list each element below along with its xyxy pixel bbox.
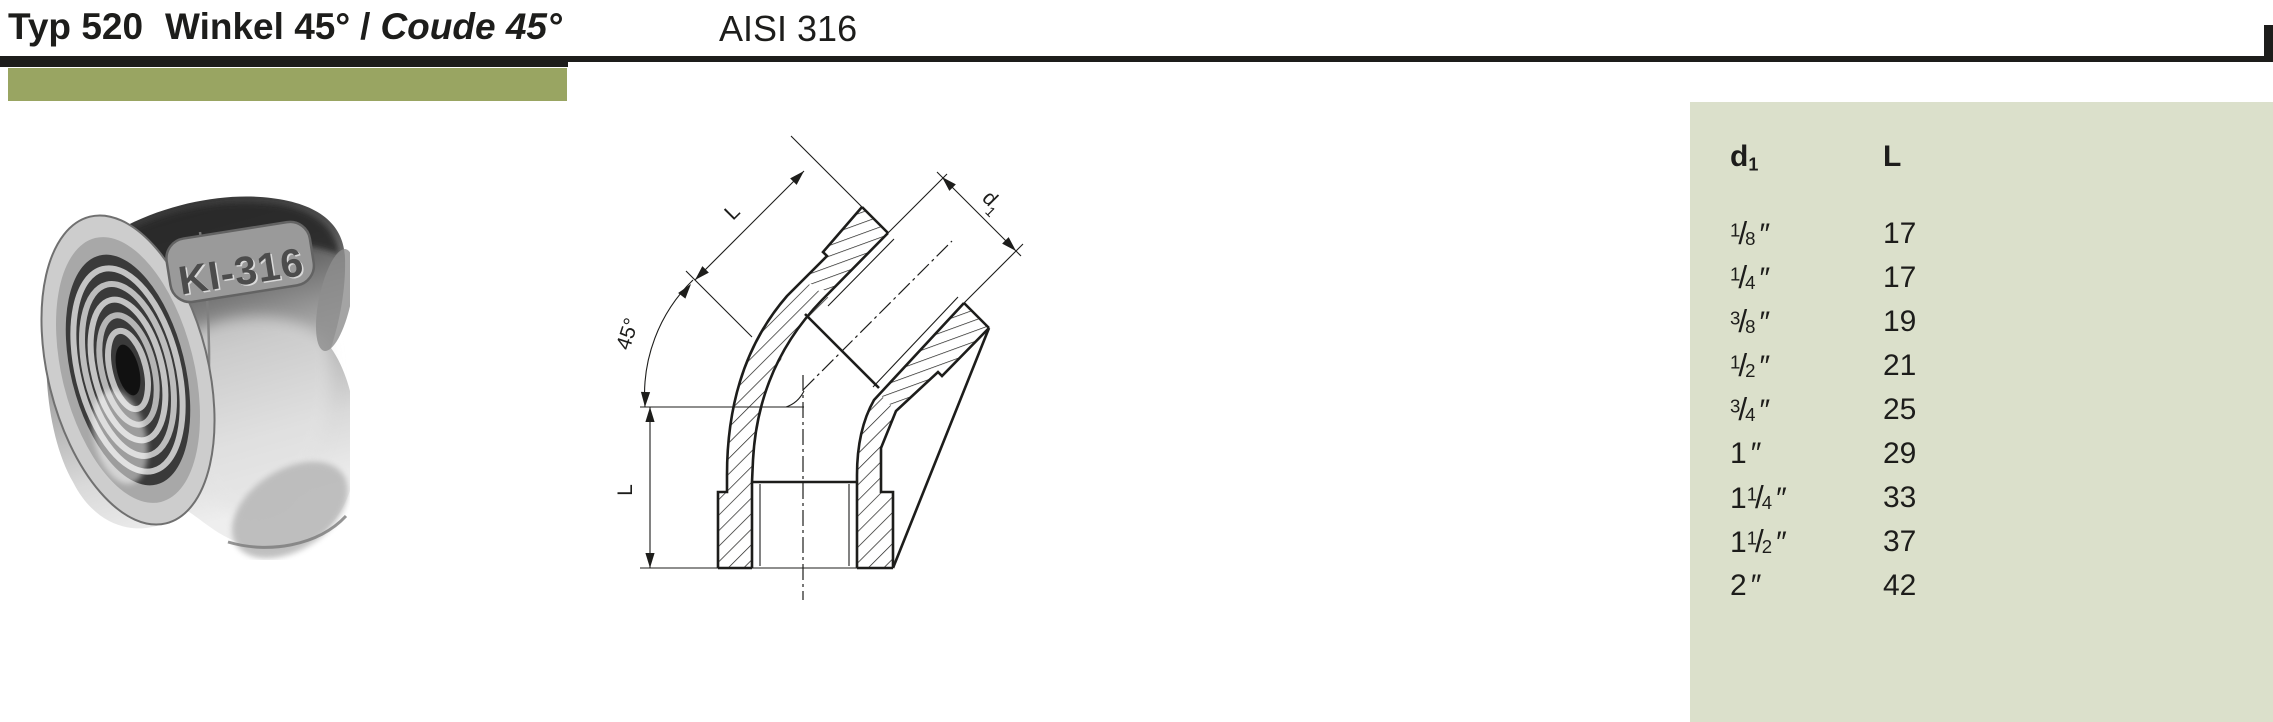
d1-fraction: 3/4: [1730, 394, 1755, 427]
spec-panel: d1 L 1/8″ 17 1/4″ 17 3/8″ 19 1/2″ 21 3/4…: [1690, 102, 2273, 722]
d1-cell: 1/2″: [1730, 347, 1883, 384]
d1-cell: 1″: [1730, 437, 1883, 471]
d1-fraction: 1/8: [1730, 218, 1755, 251]
d1-whole: 1: [1730, 526, 1747, 559]
d1-cell: 3/8″: [1730, 303, 1883, 340]
technical-drawing: L d1 45° L: [590, 130, 1060, 630]
title-separator: /: [360, 6, 370, 47]
l-cell: 37: [1883, 525, 2273, 559]
product-photo: KI-316 KI-316: [28, 180, 350, 560]
table-row: 3/8″ 19: [1730, 300, 2273, 344]
spec-table-header: d1 L: [1690, 102, 2273, 184]
material-label: AISI 316: [719, 8, 857, 50]
l-cell: 29: [1883, 437, 2273, 471]
d1-unit: ″: [1751, 569, 1762, 602]
table-row: 1/4″ 17: [1730, 256, 2273, 300]
l-cell: 17: [1883, 261, 2273, 295]
d1-whole: 2: [1730, 569, 1747, 602]
l-cell: 33: [1883, 481, 2273, 515]
table-row: 3/4″ 25: [1730, 388, 2273, 432]
d1-cell: 11/4″: [1730, 479, 1883, 516]
datasheet-page: Typ 520 Winkel 45°/Coude 45° AISI 316: [0, 0, 2273, 722]
d1-unit: ″: [1776, 526, 1787, 559]
d1-whole: 1: [1730, 437, 1747, 470]
d1-fraction: 1/4: [1747, 482, 1772, 515]
d1-fraction: 1/2: [1730, 350, 1755, 383]
dim-label-length-top: L: [720, 200, 745, 225]
header-rule-end-tick: [2264, 25, 2273, 62]
l-cell: 17: [1883, 217, 2273, 251]
accent-bar: [8, 68, 567, 101]
d1-unit: ″: [1751, 437, 1762, 470]
d1-unit: ″: [1759, 394, 1770, 427]
d1-unit: ″: [1759, 218, 1770, 251]
d1-unit: ″: [1759, 262, 1770, 295]
column-header-d1: d1: [1730, 138, 1883, 184]
title-underline-rule: [0, 56, 568, 67]
d1-whole: 1: [1730, 482, 1747, 515]
table-row: 11/4″ 33: [1730, 476, 2273, 520]
d1-cell: 1/8″: [1730, 215, 1883, 252]
table-row: 2″ 42: [1730, 564, 2273, 608]
d1-fraction: 1/4: [1730, 262, 1755, 295]
wall-left-lower-hatch: [718, 280, 829, 568]
d1-fraction: 3/8: [1730, 306, 1755, 339]
dim-label-angle: 45°: [612, 315, 644, 352]
l-cell: 21: [1883, 349, 2273, 383]
title-french: Coude 45°: [380, 6, 561, 47]
d1-unit: ″: [1759, 306, 1770, 339]
header-rule: [568, 56, 2273, 62]
column-header-l: L: [1883, 138, 2273, 184]
l-cell: 19: [1883, 305, 2273, 339]
table-row: 1″ 29: [1730, 432, 2273, 476]
d1-cell: 2″: [1730, 569, 1883, 603]
spec-table-body: 1/8″ 17 1/4″ 17 3/8″ 19 1/2″ 21 3/4″ 25 …: [1690, 184, 2273, 608]
product-title: Winkel 45°/Coude 45°: [165, 6, 562, 48]
title-german: Winkel 45°: [165, 6, 350, 47]
dim-label-diameter: d1: [974, 186, 1008, 220]
table-row: 11/2″ 37: [1730, 520, 2273, 564]
d1-unit: ″: [1776, 482, 1787, 515]
dim-label-length-left: L: [614, 484, 637, 496]
l-cell: 42: [1883, 569, 2273, 603]
d1-cell: 11/2″: [1730, 523, 1883, 560]
table-row: 1/8″ 17: [1730, 212, 2273, 256]
type-label: Typ 520: [8, 6, 143, 48]
table-row: 1/2″ 21: [1730, 344, 2273, 388]
l-cell: 25: [1883, 393, 2273, 427]
d1-cell: 1/4″: [1730, 259, 1883, 296]
d1-unit: ″: [1759, 350, 1770, 383]
d1-cell: 3/4″: [1730, 391, 1883, 428]
d1-fraction: 1/2: [1747, 526, 1772, 559]
